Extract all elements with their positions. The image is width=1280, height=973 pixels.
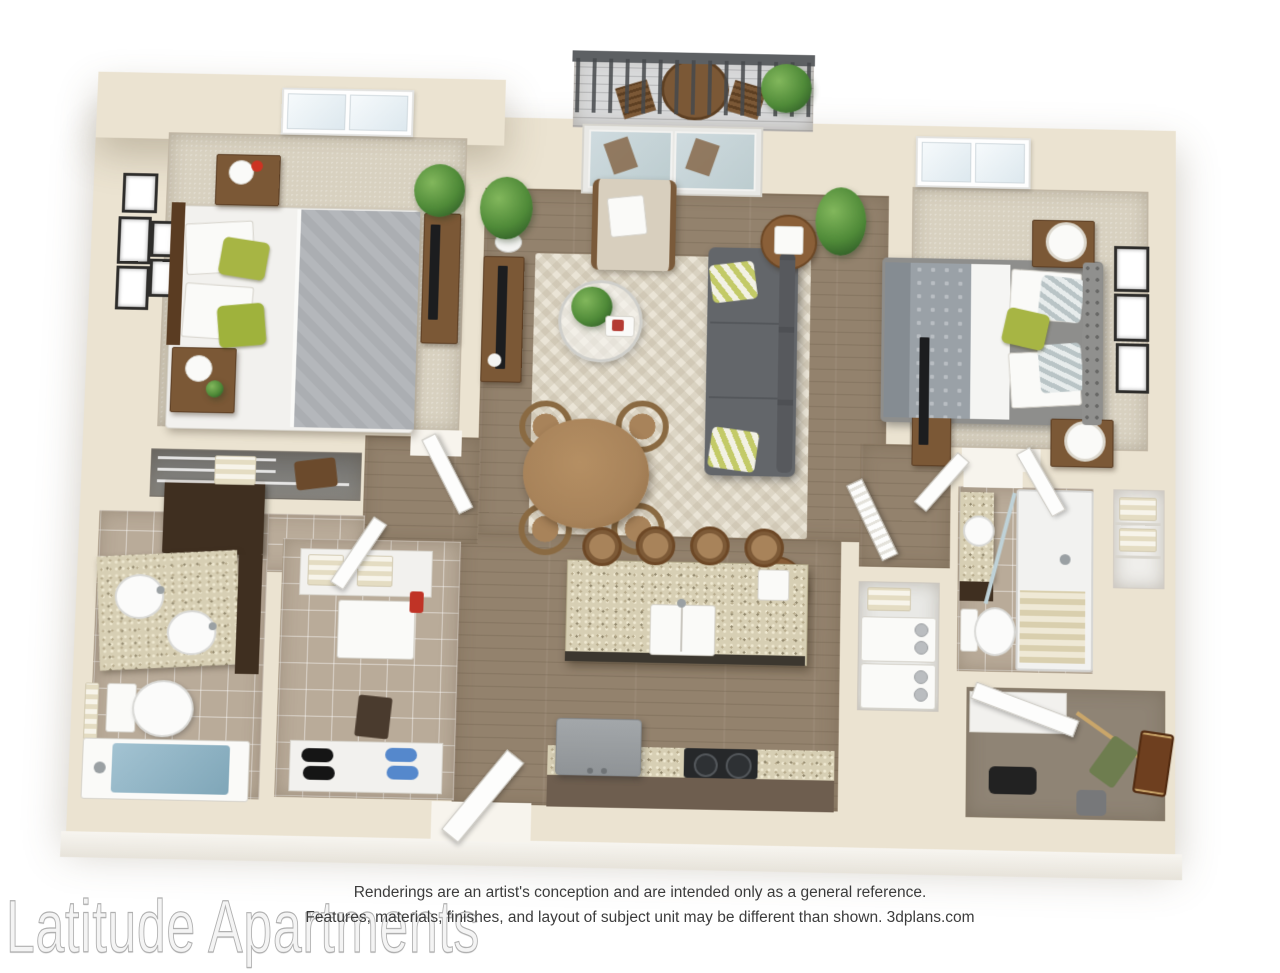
kitchen-counter-base	[546, 775, 834, 813]
hamper	[354, 695, 393, 740]
black-clothes-pile	[989, 766, 1037, 795]
floor-plan	[0, 19, 1280, 973]
wall-art-frame	[1116, 343, 1150, 393]
balcony-door-glass-right	[674, 131, 757, 191]
bed-2-pillow-patterned	[1037, 343, 1084, 394]
bedroom-2-skylight-window	[915, 136, 1030, 189]
linen-towels	[1119, 528, 1157, 552]
disclaimer-line-2: Features, materials, finishes, and layou…	[0, 905, 1280, 930]
side-table-lamp	[757, 569, 789, 601]
wall-art-frame	[1114, 294, 1149, 342]
drum-lamp	[1046, 222, 1087, 263]
linen-towels	[1119, 497, 1157, 521]
closet-bag	[294, 457, 338, 491]
washer-dial	[914, 623, 928, 637]
disclaimer-text: Renderings are an artist's conception an…	[0, 880, 1280, 930]
bath-1-vanity-counter	[97, 550, 241, 671]
washer-dial	[914, 641, 928, 655]
laundry-towel-stack	[867, 587, 911, 611]
wall-art-frame	[1114, 246, 1149, 292]
bath-1-wall-cabinets	[162, 479, 265, 555]
storage-appliance	[337, 600, 416, 660]
bath-1-cabinet-side	[235, 555, 263, 675]
closet-towel-stack	[214, 455, 256, 485]
bath-2-toilet-bowl	[974, 607, 1016, 657]
side-table-lamp	[774, 226, 804, 255]
bed-pillow-green	[217, 302, 267, 348]
sink-faucet	[677, 599, 686, 608]
armchair-pillow	[607, 195, 648, 238]
bathroom-2-door-opening	[963, 470, 1022, 489]
bedroom-1-skylight-window	[281, 88, 415, 138]
sofa-pillow-patterned	[709, 260, 758, 303]
dryer-dial	[914, 688, 928, 702]
refrigerator-handle	[587, 768, 593, 774]
towel-bar-towel	[83, 682, 99, 739]
sofa-pillow-patterned	[707, 426, 760, 473]
skylight-pane	[975, 143, 1025, 184]
disclaimer-line-1: Renderings are an artist's conception an…	[0, 880, 1280, 905]
bed-2-tufted-headboard	[1082, 262, 1102, 425]
bedroom-2-tv	[919, 337, 930, 445]
skylight-pane	[349, 95, 408, 132]
wall-art-frame	[115, 266, 150, 310]
drum-lamp	[1064, 421, 1106, 462]
blue-shoes	[385, 748, 417, 762]
wall-art-frame	[122, 173, 159, 213]
refrigerator	[555, 718, 642, 777]
black-shoes	[301, 748, 333, 762]
washer	[861, 616, 937, 663]
shower-head	[1060, 554, 1071, 565]
blue-shoes	[386, 766, 418, 780]
black-shoes	[303, 766, 335, 780]
bed-duvet-gray	[290, 209, 420, 429]
dryer	[860, 663, 936, 710]
bath-2-sink	[963, 515, 995, 547]
bed-2-blanket-fold	[883, 262, 910, 417]
shower-curtain-striped	[1019, 590, 1085, 664]
bathtub-water	[111, 743, 230, 795]
red-bottle	[409, 591, 423, 613]
coffee-table-book-accent	[612, 320, 624, 332]
dryer-dial	[914, 670, 928, 684]
skylight-pane	[921, 142, 971, 183]
skylight-pane	[287, 93, 347, 130]
refrigerator-handle	[601, 768, 607, 774]
wall-art-frame	[117, 216, 152, 264]
bedroom-1-tv-dresser	[420, 213, 461, 344]
bed-pillow-green	[217, 236, 270, 281]
gray-bag	[1076, 790, 1106, 816]
